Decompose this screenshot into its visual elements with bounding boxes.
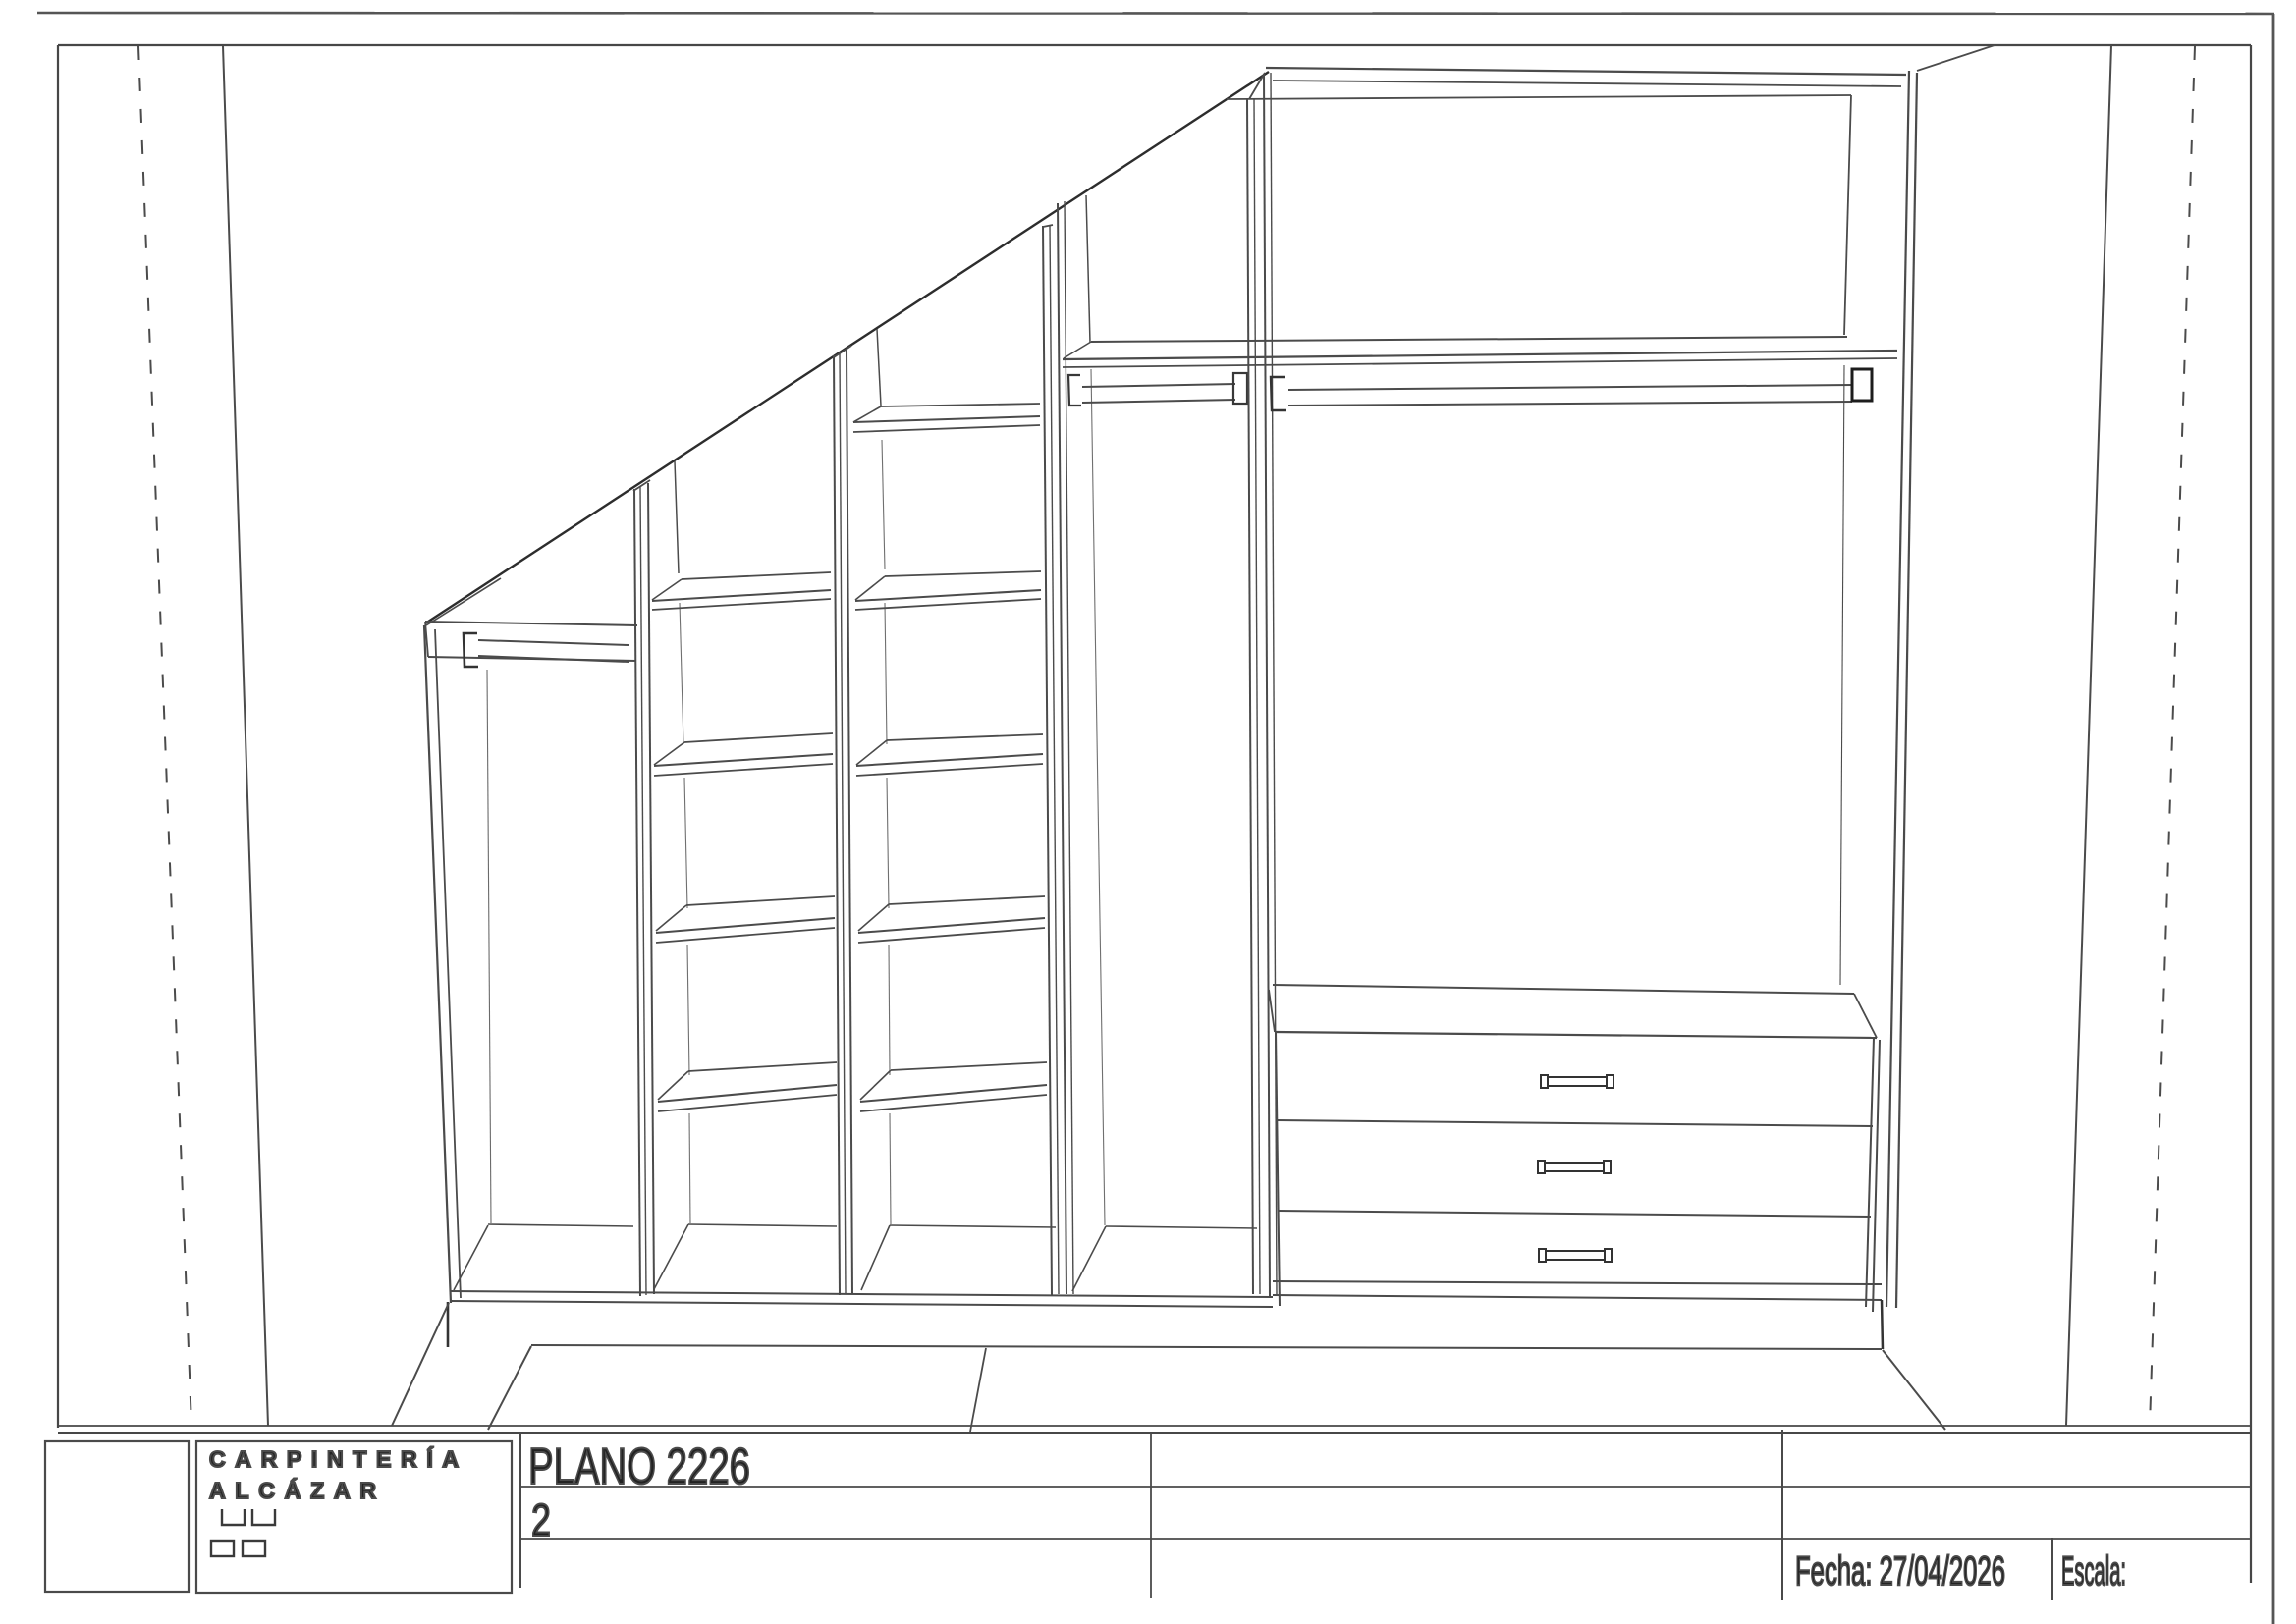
svg-text:Escala:: Escala: xyxy=(2061,1547,2126,1594)
svg-text:Fecha: 27/04/2026: Fecha: 27/04/2026 xyxy=(1795,1547,2005,1594)
svg-text:ALCÁZAR: ALCÁZAR xyxy=(209,1477,376,1503)
svg-text:2: 2 xyxy=(531,1494,551,1545)
svg-text:CARPINTERÍA: CARPINTERÍA xyxy=(209,1445,459,1472)
svg-text:PLANO 2226: PLANO 2226 xyxy=(528,1438,750,1495)
